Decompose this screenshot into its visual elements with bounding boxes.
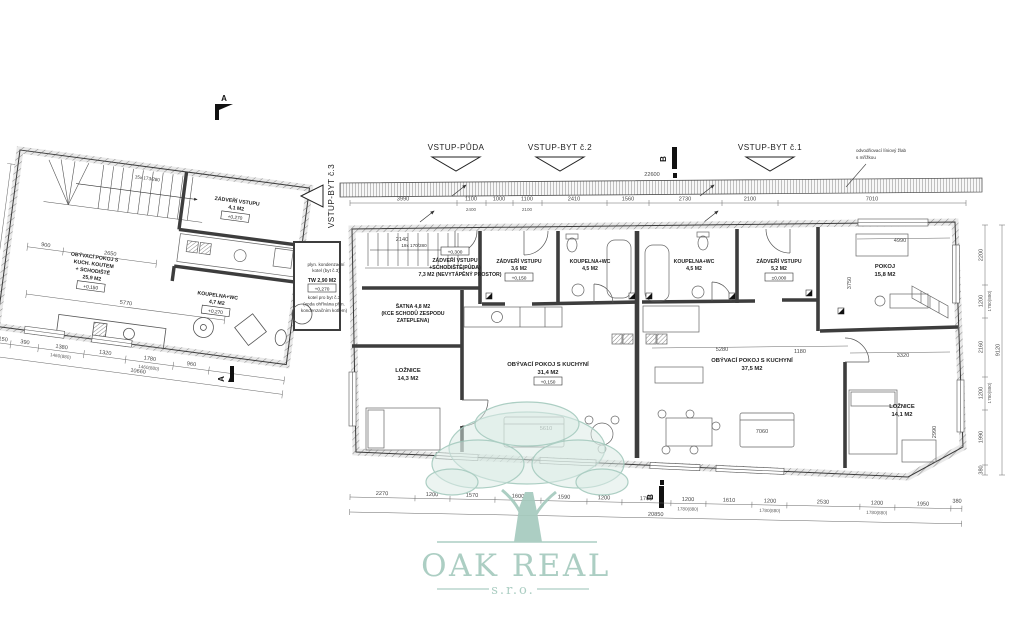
- dim-in-7060: 7060: [756, 429, 768, 435]
- dim-t3-sub: 2100: [522, 207, 533, 212]
- loznice2-area: 14,3 M2: [398, 376, 419, 382]
- entry-byt3-label: VSTUP-BYT č.3: [327, 164, 336, 228]
- dim-l1: 390: [20, 339, 30, 346]
- dim-in-1180: 1180: [794, 349, 806, 355]
- entry-puda-label: VSTUP-PŮDA: [428, 141, 485, 152]
- dim-l3: 1320: [99, 350, 112, 358]
- dim-t4: 2410: [568, 197, 580, 203]
- section-b-top: B: [659, 156, 668, 162]
- dim-b10: 2530: [817, 499, 830, 505]
- dim-in-3320: 3320: [897, 353, 909, 359]
- left-plan: 15x 173/280: [0, 148, 310, 398]
- dim-t5: 1560: [622, 197, 634, 203]
- satna-l2: (KCE SCHODŮ ZESPODU: [381, 309, 444, 317]
- boiler-note-2: kotel (byt č.3): [312, 268, 340, 273]
- dim-l2-sub: 1460(880): [50, 352, 72, 360]
- floorplan-canvas: 15x 173/280: [0, 0, 1024, 640]
- floorplan-page: 15x 173/280: [0, 0, 1024, 640]
- loznice2-l1: LOŽNICE: [395, 366, 421, 374]
- obyv2-elev: +0,150: [541, 379, 556, 385]
- loznice1-area: 14,1 M2: [892, 412, 913, 418]
- boiler-note-1: plyn. kondenzační: [307, 262, 345, 267]
- zadveri2-l1: ZÁDVEŘÍ VSTUPU: [496, 257, 542, 265]
- koupelna2-l1: KOUPELNA+WC: [570, 259, 611, 265]
- dim-r2: 2160: [979, 341, 985, 353]
- dim-b9-sub: 1780(880): [759, 508, 781, 513]
- entry-byt2-arrow-icon: [536, 157, 584, 171]
- dim-l5: 960: [186, 361, 196, 368]
- dim-r1-sub: 1780(880): [987, 290, 992, 311]
- zadveri-puda-l2: +SCHODIŠTĚ(PŮDA): [429, 263, 481, 271]
- entry-byt2-label: VSTUP-BYT č.2: [528, 143, 592, 152]
- dim-r5: 380: [979, 465, 985, 474]
- tw-label: TW 2,90 M2: [308, 278, 336, 284]
- dim-b5: 1200: [598, 495, 611, 501]
- watermark-name: OAK REAL: [421, 548, 611, 584]
- dim-r3-sub: 1780(880): [987, 382, 992, 403]
- entry-byt1-label: VSTUP-BYT č.1: [738, 143, 802, 152]
- satna-l1: ŠATNA 4,8 M2: [396, 302, 431, 310]
- obyv2-l1: OBÝVACÍ POKOJ S KUCHYNÍ: [507, 360, 589, 368]
- dim-t3: 1100: [521, 197, 533, 203]
- loznice1-l1: LOŽNICE: [889, 402, 915, 410]
- dim-b11-sub: 1780(880): [866, 510, 888, 515]
- dim-in-3750: 3750: [847, 277, 853, 289]
- dim-r1: 1200: [979, 295, 985, 307]
- dim-in-2140: 2140: [396, 237, 408, 243]
- main-stair-note: 19x 170/280: [401, 243, 427, 248]
- dim-t2: 1000: [493, 197, 505, 203]
- dim-b2: 1570: [466, 493, 479, 499]
- dim-t8: 7010: [866, 197, 878, 203]
- dims-top: 3990 1100 1000 1100 2410 1560 2730 2100 …: [350, 197, 966, 213]
- dim-b4: 1590: [558, 494, 571, 500]
- pokoj-l1: POKOJ: [875, 264, 895, 270]
- dim-b6: 1700: [640, 496, 653, 502]
- dim-in-2990: 2990: [932, 426, 938, 438]
- boiler-note-4: (voda ohřívána plyn.: [303, 302, 345, 307]
- koupelna2-area: 4,5 M2: [582, 266, 598, 272]
- dim-t0: 3990: [397, 197, 409, 203]
- dim-t1: 1100: [465, 197, 477, 203]
- tw-elev: +0,270: [315, 286, 330, 292]
- dim-b8: 1610: [723, 498, 736, 504]
- obyv2-area: 31,4 M2: [538, 370, 559, 376]
- dim-b7: 1200: [682, 497, 695, 503]
- section-a-bottom: A: [217, 376, 226, 382]
- dims-right: 2200 1200 2160 1200 1990 380 1780(880) 1…: [979, 225, 1006, 475]
- koupelna1-l1: KOUPELNA+WC: [674, 259, 715, 265]
- dim-r4: 1990: [979, 431, 985, 443]
- dim-b7-sub: 1780(880): [677, 506, 699, 511]
- dim-t7: 2100: [744, 197, 756, 203]
- dim-left-900: 900: [41, 242, 51, 249]
- dim-top-total: 22600: [644, 172, 660, 178]
- drain-note-2: s mřížkou: [856, 155, 876, 160]
- entry-puda-arrow-icon: [432, 157, 480, 171]
- dim-l2: 1380: [55, 344, 68, 352]
- dim-l0: 150: [0, 336, 8, 343]
- boiler-note-3: kotel pro byt č.3: [308, 295, 341, 300]
- zadveri2-area: 3,6 M2: [511, 266, 527, 272]
- dim-t1-sub: 2400: [466, 207, 477, 212]
- koupelna1-area: 4,5 M2: [686, 266, 702, 272]
- junction-boiler: plyn. kondenzační kotel (byt č.3) TW 2,9…: [292, 242, 348, 330]
- obyv1-l1: OBÝVACÍ POKOJ S KUCHYNÍ: [711, 356, 793, 364]
- entry-byt1-arrow-icon: [746, 157, 794, 171]
- zadveri1-elev: ±0,000: [772, 275, 787, 281]
- boiler-note-5: kondenzačním kotlem): [301, 308, 348, 313]
- dim-t6: 2730: [679, 197, 691, 203]
- dim-in-5280: 5280: [716, 347, 728, 353]
- dim-r3: 1200: [979, 387, 985, 399]
- zadveri2-elev: +0,150: [512, 275, 527, 281]
- zadveri-puda-elev: +0,300: [448, 249, 463, 255]
- dim-r0: 2200: [979, 249, 985, 261]
- dim-right-total: 9120: [996, 344, 1002, 356]
- zadveri-puda-l1: ZÁDVEŘÍ VSTUPU: [432, 256, 478, 264]
- section-a-top: A: [221, 94, 227, 103]
- pokoj-area: 15,8 M2: [875, 272, 896, 278]
- zadveri1-l1: ZÁDVEŘÍ VSTUPU: [756, 257, 802, 265]
- dim-b12: 1950: [917, 501, 930, 507]
- dim-b9: 1200: [764, 498, 777, 504]
- dim-b13: 380: [952, 499, 961, 505]
- dim-bottom-total: 20850: [648, 512, 664, 518]
- watermark-suffix: s.r.o.: [491, 583, 534, 598]
- drain-note-1: odvodňovací líniový žlab: [856, 148, 906, 153]
- zadveri1-area: 5,2 M2: [771, 266, 787, 272]
- dim-b11: 1200: [871, 500, 884, 506]
- obyv1-area: 37,5 M2: [742, 366, 763, 372]
- dim-in-4990: 4990: [894, 238, 906, 244]
- dim-l4: 1780: [143, 355, 156, 363]
- dim-b0: 2270: [376, 491, 389, 497]
- satna-l3: ZATEPLENA): [397, 318, 430, 324]
- zadveri-puda-l3: 7,3 M2 (NEVYTÁPĚNÝ PROSTOR): [419, 270, 502, 278]
